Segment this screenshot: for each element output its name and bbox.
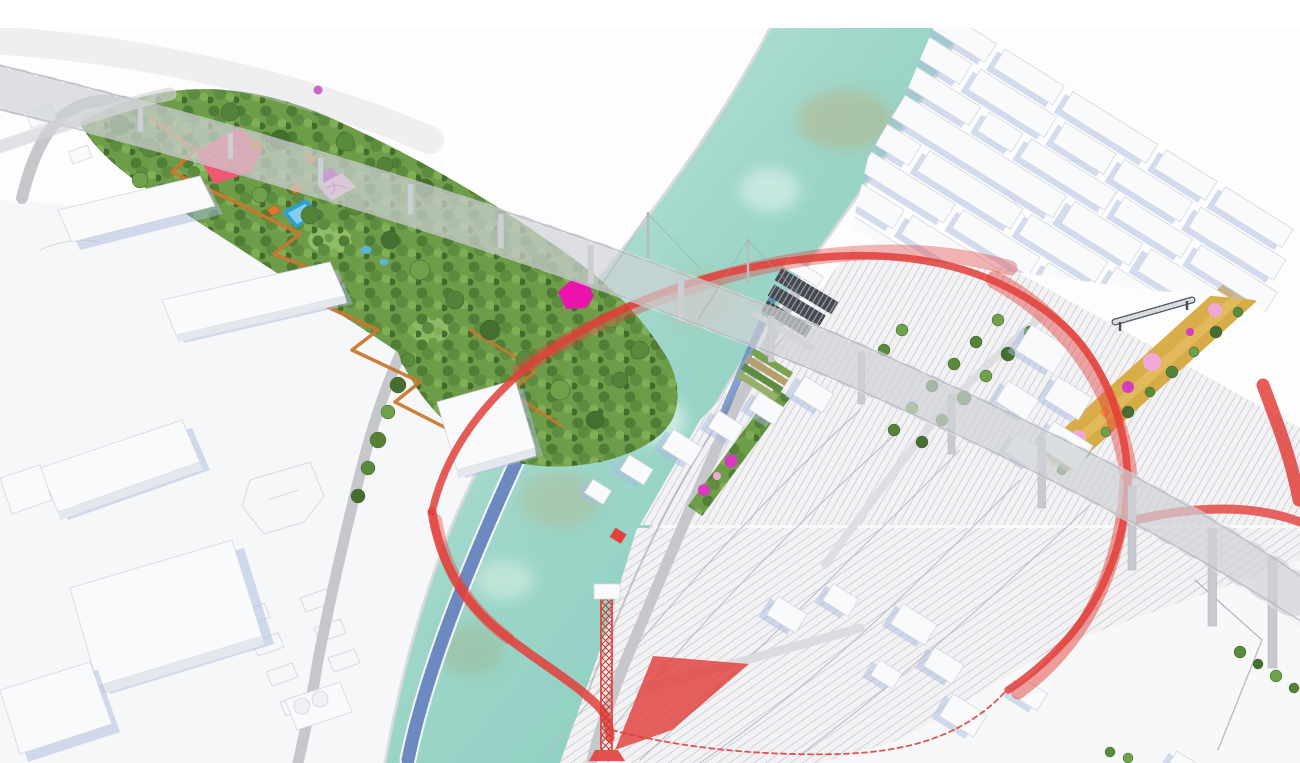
rendering-canvas — [0, 0, 1300, 763]
mast-top-box — [594, 584, 620, 599]
masterplan-rendering — [0, 0, 1300, 763]
pond — [380, 259, 389, 265]
memorial-mast-lattice — [600, 598, 613, 750]
umbrella-dot — [725, 455, 738, 468]
umbrella-dot — [698, 484, 710, 496]
top-margin — [0, 0, 1300, 28]
pond — [361, 246, 372, 254]
umbrella-dot — [713, 472, 721, 480]
